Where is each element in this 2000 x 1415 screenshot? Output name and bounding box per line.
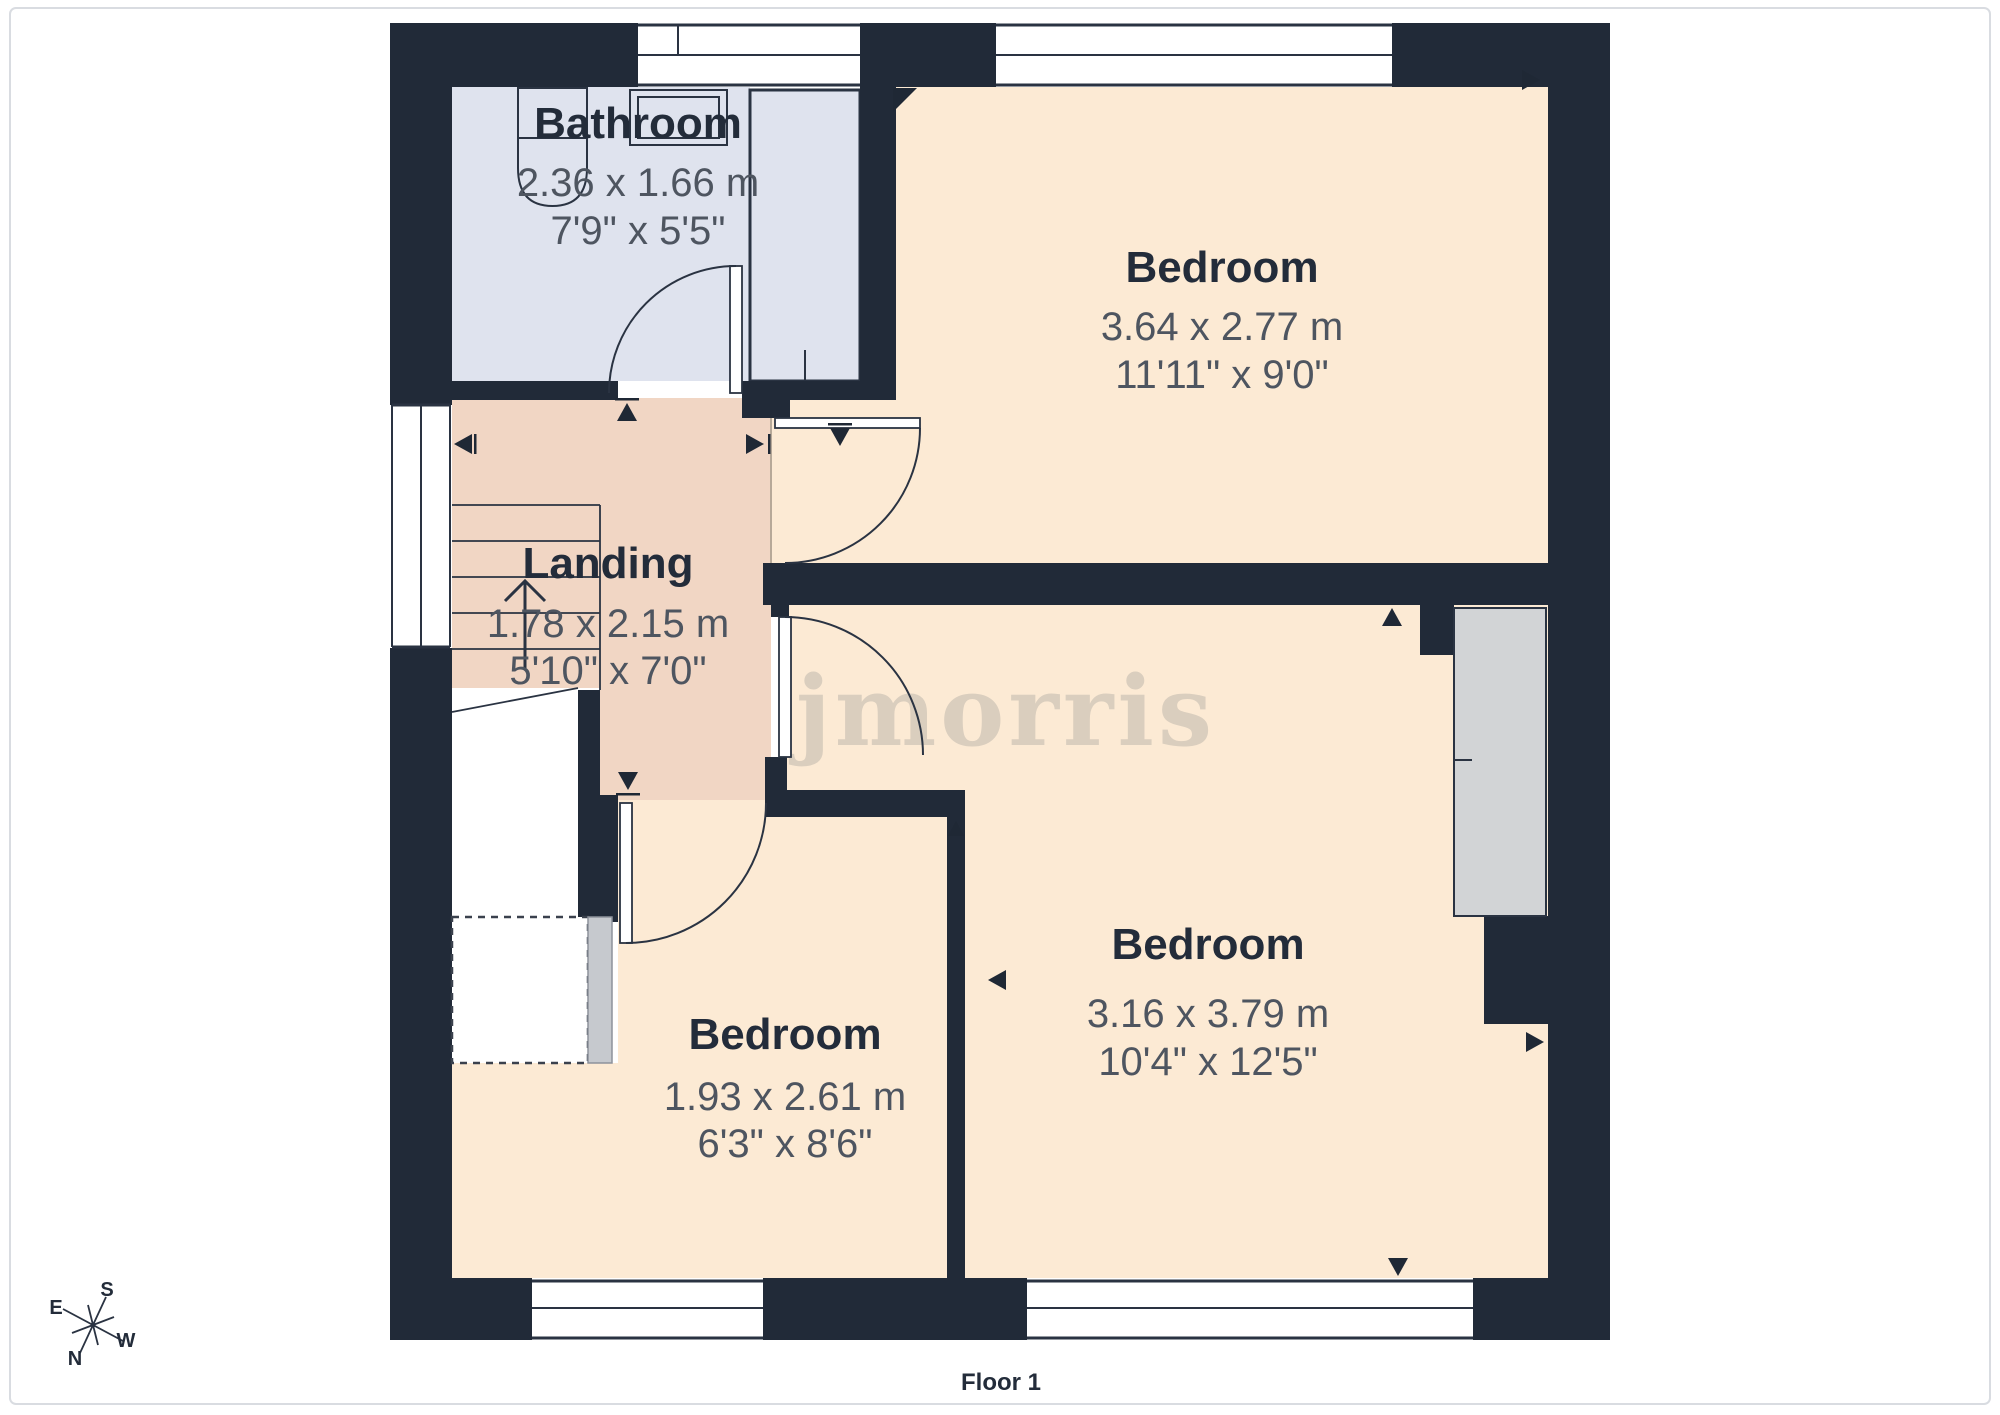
floor-label: Floor 1 bbox=[961, 1369, 1041, 1396]
wall-segment bbox=[390, 23, 452, 405]
compass-south: S bbox=[100, 1279, 113, 1301]
loft-hatch bbox=[452, 917, 588, 1063]
wall-segment bbox=[390, 648, 452, 1340]
label-bedroom-small: Bedroom 1.93 x 2.61 m 6'3" x 8'6" bbox=[664, 1010, 906, 1166]
room-dim-metric: 3.64 x 2.77 m bbox=[1101, 305, 1343, 349]
compass-west: W bbox=[117, 1330, 136, 1352]
room-dim-metric: 2.36 x 1.66 m bbox=[517, 161, 759, 205]
floorplan-canvas: jmorris bbox=[0, 0, 2000, 1415]
wall-segment bbox=[578, 795, 618, 922]
marker-tick bbox=[615, 398, 639, 401]
room-name: Landing bbox=[522, 539, 693, 588]
wall-segment bbox=[390, 1278, 532, 1340]
room-dim-metric: 1.93 x 2.61 m bbox=[664, 1075, 906, 1119]
wall-segment bbox=[765, 790, 965, 817]
label-bedroom-right: Bedroom 3.16 x 3.79 m 10'4" x 12'5" bbox=[1087, 920, 1329, 1084]
bedroom-small-door-leaf bbox=[620, 803, 632, 943]
room-dim-metric: 1.78 x 2.15 m bbox=[487, 602, 729, 646]
wall-segment bbox=[1420, 605, 1454, 655]
wall-segment bbox=[947, 817, 965, 1278]
room-dim-imperial: 11'11" x 9'0" bbox=[1115, 353, 1328, 397]
room-name: Bathroom bbox=[534, 99, 742, 148]
wall-segment bbox=[763, 563, 1610, 605]
bedroom-small-floor-ext bbox=[452, 1063, 618, 1278]
wall-segment bbox=[1548, 23, 1610, 1340]
wall-segment bbox=[771, 563, 789, 617]
wall-segment bbox=[763, 1278, 1027, 1340]
wall-segment bbox=[452, 381, 618, 400]
compass-east: E bbox=[49, 1297, 62, 1319]
room-dim-metric: 3.16 x 3.79 m bbox=[1087, 992, 1329, 1036]
wall-chimney-breast bbox=[1484, 916, 1548, 1024]
room-dim-imperial: 10'4" x 12'5" bbox=[1098, 1040, 1317, 1084]
room-dim-imperial: 5'10" x 7'0" bbox=[509, 649, 706, 693]
stair-void bbox=[452, 690, 578, 917]
room-name: Bedroom bbox=[688, 1010, 881, 1059]
marker-tick bbox=[828, 423, 852, 426]
label-bedroom-top: Bedroom 3.64 x 2.77 m 11'11" x 9'0" bbox=[1101, 243, 1343, 397]
room-name: Bedroom bbox=[1111, 920, 1304, 969]
shower-cupboard bbox=[750, 90, 860, 381]
bathroom-door-leaf bbox=[730, 266, 742, 393]
compass-north: N bbox=[68, 1348, 82, 1370]
label-landing: Landing 1.78 x 2.15 m 5'10" x 7'0" bbox=[487, 539, 729, 693]
watermark: jmorris bbox=[788, 655, 1216, 768]
room-dim-imperial: 7'9" x 5'5" bbox=[551, 209, 726, 253]
wall-segment bbox=[860, 87, 896, 400]
compass-center bbox=[91, 1323, 96, 1328]
wall-segment bbox=[1473, 1278, 1610, 1340]
hatch-panel bbox=[588, 917, 612, 1063]
room-name: Bedroom bbox=[1125, 243, 1318, 292]
label-bathroom: Bathroom 2.36 x 1.66 m 7'9" x 5'5" bbox=[517, 99, 759, 253]
wall-segment bbox=[860, 23, 996, 87]
room-dim-imperial: 6'3" x 8'6" bbox=[698, 1122, 873, 1166]
marker-tick bbox=[474, 434, 477, 454]
bedroom-right-door-leaf bbox=[779, 617, 791, 757]
wardrobe bbox=[1454, 608, 1546, 916]
wall-segment bbox=[742, 400, 790, 418]
marker-tick bbox=[616, 793, 640, 796]
marker-tick bbox=[768, 434, 771, 454]
